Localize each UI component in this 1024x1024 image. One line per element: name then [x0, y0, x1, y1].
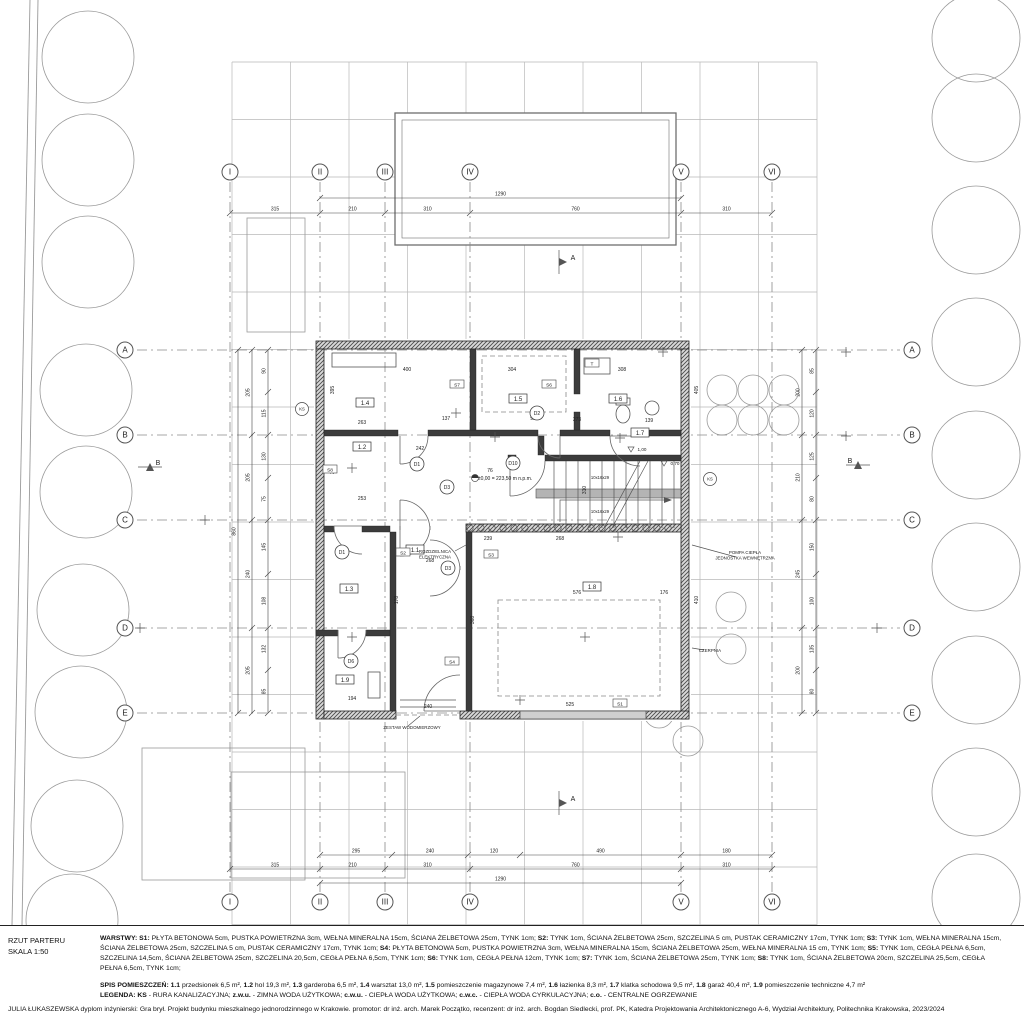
- floor-plan-drawing: IIIIIIIIIIIIIVIVVVVIVIAABBCCDDEE: [0, 0, 1024, 925]
- grid-marker-label: D: [122, 624, 128, 633]
- room-label: 1.3: [340, 584, 358, 593]
- wall-type-text: S1: [617, 702, 623, 708]
- tree-icon: [37, 564, 129, 656]
- tree-icon: [932, 74, 1020, 162]
- dim-label: 80: [810, 689, 816, 695]
- dim-label: 125: [810, 452, 816, 461]
- survey-cross: [841, 347, 851, 357]
- garage-door: [520, 711, 646, 719]
- door-label: D3: [441, 561, 455, 575]
- room-list-paragraph: SPIS POMIESZCZEŃ: 1.1 przedsionek 6,5 m²…: [100, 981, 1008, 991]
- dim-label: 176: [660, 590, 669, 596]
- room-number: 1.5: [514, 397, 523, 403]
- wall-type-text: T: [591, 362, 594, 368]
- credits-line: JULIA ŁUKASZEWSKA dyplom inżynierski: Gr…: [8, 1006, 1018, 1013]
- wall-type-tag: S8: [323, 465, 337, 474]
- dim-label: 760: [571, 207, 580, 213]
- tree-icon: [932, 523, 1020, 611]
- door-number: D3: [445, 566, 452, 572]
- tree-icon: [932, 186, 1020, 274]
- grid-marker-label: B: [122, 431, 127, 440]
- dim-label: 576: [573, 590, 582, 596]
- dim-label: 210: [348, 207, 357, 213]
- grid-marker-label: III: [382, 898, 389, 907]
- room-number: 1.8: [588, 585, 597, 591]
- door-label: D10: [506, 456, 520, 470]
- shrub-icon: [673, 726, 703, 756]
- dim-label: 310: [582, 486, 588, 495]
- dim-label: 200: [796, 388, 802, 397]
- dim-label: 200: [796, 666, 802, 675]
- dim-label: 263: [358, 420, 367, 426]
- door-number: D10: [508, 461, 517, 467]
- ks-text: KS: [299, 407, 305, 412]
- ks-marker: KS: [296, 403, 309, 416]
- survey-cross: [841, 431, 851, 441]
- dim-label: 80: [810, 496, 816, 502]
- dim-label: 295: [352, 849, 361, 855]
- shrub-icon: [769, 405, 799, 435]
- room-number: 1.6: [614, 397, 623, 403]
- annotation-text: POMPA CIEPŁA: [729, 550, 761, 555]
- dim-label: 210: [796, 473, 802, 482]
- grid-marker-label: A: [909, 346, 915, 355]
- dim-label: 115: [262, 409, 268, 417]
- survey-cross: [872, 623, 882, 633]
- annotation-text: ROZDZIELNICA: [419, 549, 451, 554]
- dim-label: 120: [490, 849, 499, 855]
- wall-type-tag: S6: [542, 380, 556, 389]
- architectural-sheet: IIIIIIIIIIIIIVIVVVVIVIAABBCCDDEE: [0, 0, 1024, 1024]
- room-number: 1.7: [636, 431, 645, 437]
- room-label: 1.6: [609, 394, 627, 403]
- wall-type-tag: S1: [613, 699, 627, 708]
- tree-icon: [35, 666, 127, 758]
- drawing-title: RZUT PARTERU: [8, 935, 100, 946]
- wall-type-text: S3: [488, 553, 494, 559]
- grid-marker-label: E: [909, 709, 914, 718]
- dim-label: 242: [416, 446, 425, 452]
- wall-type-text: S4: [449, 660, 455, 666]
- door-number: D1: [339, 550, 346, 556]
- wall-type-text: S7: [454, 383, 460, 389]
- dim-label: 525: [566, 702, 575, 708]
- dim-label: 100: [810, 597, 816, 606]
- dim-label: 240: [246, 570, 252, 579]
- title-block: RZUT PARTERU SKALA 1:50 WARSTWY: S1: PŁY…: [0, 925, 1024, 1024]
- room-label: 1.5: [509, 394, 527, 403]
- dim-label: 310: [423, 863, 432, 869]
- dim-label: 304: [508, 367, 517, 373]
- level-text: 0,70: [671, 461, 680, 466]
- grid-marker-label: B: [909, 431, 914, 440]
- tree-icon: [932, 298, 1020, 386]
- dim-label: 395: [330, 386, 336, 395]
- tree-icon: [42, 114, 134, 206]
- tree-icon: [932, 854, 1020, 925]
- tree-icon: [932, 411, 1020, 499]
- stair-dim-text: 10x16x29: [591, 475, 610, 480]
- wall-type-tag: S4: [445, 657, 459, 666]
- grid-marker-label: E: [122, 709, 127, 718]
- wall-type-tag: S2: [396, 548, 410, 557]
- door-label: D1: [410, 457, 424, 471]
- door-label: D3: [440, 480, 454, 494]
- section-marker: A: [559, 250, 576, 274]
- dim-label: 130: [262, 452, 268, 461]
- dim-label: 85: [810, 368, 816, 374]
- dim-label: 273: [573, 417, 582, 423]
- grid-marker-label: A: [122, 346, 128, 355]
- dim-label: 315: [271, 207, 280, 213]
- grid-marker-label: I: [229, 898, 231, 907]
- grid-marker-label: D: [909, 624, 915, 633]
- annotation-text: ZESTAW WODOMIERZOWY: [383, 725, 440, 730]
- dim-label: 205: [246, 666, 252, 675]
- section-marker: B: [138, 460, 162, 471]
- dim-label: 239: [484, 536, 493, 542]
- shrub-icon: [707, 405, 737, 435]
- grid-marker-label: V: [678, 168, 684, 177]
- grid-marker-label: IV: [466, 898, 474, 907]
- landscape-patch: [231, 772, 405, 878]
- grid-marker-label: C: [909, 516, 915, 525]
- road-edge-line: [22, 0, 38, 925]
- dim-label: 368: [470, 616, 476, 625]
- dim-label: 308: [618, 367, 627, 373]
- grid-marker-label: V: [678, 898, 684, 907]
- shrub-icon: [738, 405, 768, 435]
- survey-cross: [135, 623, 145, 633]
- dim-label: 860: [232, 527, 238, 536]
- dim-label: 76: [487, 468, 493, 474]
- landscape-patch: [247, 218, 305, 332]
- drawing-title-cell: RZUT PARTERU SKALA 1:50: [8, 935, 100, 957]
- room-label: 1.9: [336, 675, 354, 684]
- dim-label: 1290: [495, 877, 506, 883]
- annotation-text: JEDNOSTKA WEWNĘTRZNA: [715, 556, 774, 561]
- dim-label: 108: [262, 597, 268, 606]
- room-number: 1.4: [361, 401, 370, 407]
- dim-label: 75: [262, 496, 268, 502]
- ks-text: KS: [707, 477, 713, 482]
- tree-icon: [42, 11, 134, 103]
- room-label: 1.2: [353, 442, 371, 451]
- survey-cross: [200, 515, 210, 525]
- dim-label: 410: [694, 596, 700, 605]
- elevation-text: ±0,00 = 223,50 m n.p.m.: [478, 476, 532, 482]
- dim-label: 240: [424, 704, 433, 710]
- shrub-icon: [716, 592, 746, 622]
- dim-label: 90: [262, 368, 268, 374]
- tree-icon: [26, 874, 118, 925]
- wall-type-tag: S3: [484, 550, 498, 559]
- dim-label: 245: [796, 570, 802, 579]
- section-marker: A: [559, 791, 576, 815]
- section-label: A: [571, 255, 576, 262]
- dim-label: 310: [423, 207, 432, 213]
- section-label: B: [848, 458, 853, 465]
- dim-label: 310: [722, 207, 731, 213]
- dim-label: 135: [810, 645, 816, 654]
- dim-label: 178: [394, 596, 400, 605]
- landscape-patch: [142, 748, 305, 880]
- stair-dim-text: 10x16x29: [591, 509, 610, 514]
- tree-icon: [40, 344, 132, 436]
- dim-label: 180: [722, 849, 731, 855]
- dim-label: 405: [694, 386, 700, 395]
- road-edge-line: [12, 0, 30, 925]
- shrub-icon: [769, 375, 799, 405]
- dim-label: 210: [348, 863, 357, 869]
- dim-label: 150: [810, 543, 816, 552]
- tree-icon: [31, 780, 123, 872]
- dim-label: 137: [442, 416, 451, 422]
- door-number: D6: [348, 659, 355, 665]
- wall-type-text: S6: [546, 383, 552, 389]
- grid-marker-label: IV: [466, 168, 474, 177]
- wall-type-tag: S7: [450, 380, 464, 389]
- level-text: 1,00: [638, 447, 647, 452]
- dim-label: 253: [358, 496, 367, 502]
- door-label: D1: [335, 545, 349, 559]
- grid-marker-label: III: [382, 168, 389, 177]
- dim-label: 120: [810, 409, 816, 418]
- terrace-inner-outline: [402, 120, 669, 238]
- grid-marker-label: II: [318, 168, 322, 177]
- dim-label: 194: [348, 696, 357, 702]
- grid-marker-label: VI: [768, 898, 776, 907]
- grid-marker-label: I: [229, 168, 231, 177]
- dim-label: 268: [556, 536, 565, 542]
- door-number: D1: [414, 462, 421, 468]
- dim-label: 205: [246, 388, 252, 397]
- tree-icon: [42, 216, 134, 308]
- dim-label: 315: [271, 863, 280, 869]
- dim-label: 760: [571, 863, 580, 869]
- grid-marker-label: VI: [768, 168, 776, 177]
- door-number: D3: [444, 485, 451, 491]
- room-label: 1.8: [583, 582, 601, 591]
- dim-label: 132: [262, 645, 268, 654]
- annotation-text: CZERPNIA: [699, 648, 721, 653]
- room-number: 1.2: [358, 445, 367, 451]
- section-label: A: [571, 796, 576, 803]
- dim-label: 205: [246, 473, 252, 482]
- dim-label: 240: [426, 849, 435, 855]
- section-label: B: [156, 460, 161, 467]
- section-marker: B: [846, 458, 870, 469]
- tree-icon: [932, 636, 1020, 724]
- dim-label: 145: [262, 543, 268, 552]
- room-number: 1.9: [341, 678, 350, 684]
- wall-type-tag: T: [585, 359, 599, 368]
- dim-label: 1290: [495, 192, 506, 198]
- dim-label: 490: [596, 849, 605, 855]
- legend-paragraph: LEGENDA: KS - RURA KANALIZACYJNA; z.w.u.…: [100, 991, 1008, 1001]
- dim-label: 310: [722, 863, 731, 869]
- dim-label: 139: [645, 418, 654, 424]
- annotation-text: ELEKTRYCZNA: [419, 555, 451, 560]
- grid-marker-label: II: [318, 898, 322, 907]
- room-label: 1.4: [356, 398, 374, 407]
- room-label: 1.7: [631, 428, 649, 437]
- shrub-icon: [707, 375, 737, 405]
- dim-label: 400: [403, 367, 412, 373]
- grid-marker-label: C: [122, 516, 128, 525]
- room-number: 1.3: [345, 587, 354, 593]
- wall-type-text: S8: [327, 468, 333, 474]
- wall-type-text: S2: [400, 551, 406, 557]
- layers-paragraph: WARSTWY: S1: PŁYTA BETONOWA 5cm, PUSTKA …: [100, 934, 1008, 974]
- tree-icon: [932, 0, 1020, 82]
- title-block-text: WARSTWY: S1: PŁYTA BETONOWA 5cm, PUSTKA …: [100, 934, 1008, 1001]
- shrub-icon: [738, 375, 768, 405]
- door-label: D6: [344, 654, 358, 668]
- dim-label: 85: [262, 689, 268, 695]
- drawing-scale: SKALA 1:50: [8, 946, 100, 957]
- ks-marker: KS: [704, 473, 717, 486]
- tree-icon: [932, 748, 1020, 836]
- door-number: D2: [534, 411, 541, 417]
- door-label: D2: [530, 406, 544, 420]
